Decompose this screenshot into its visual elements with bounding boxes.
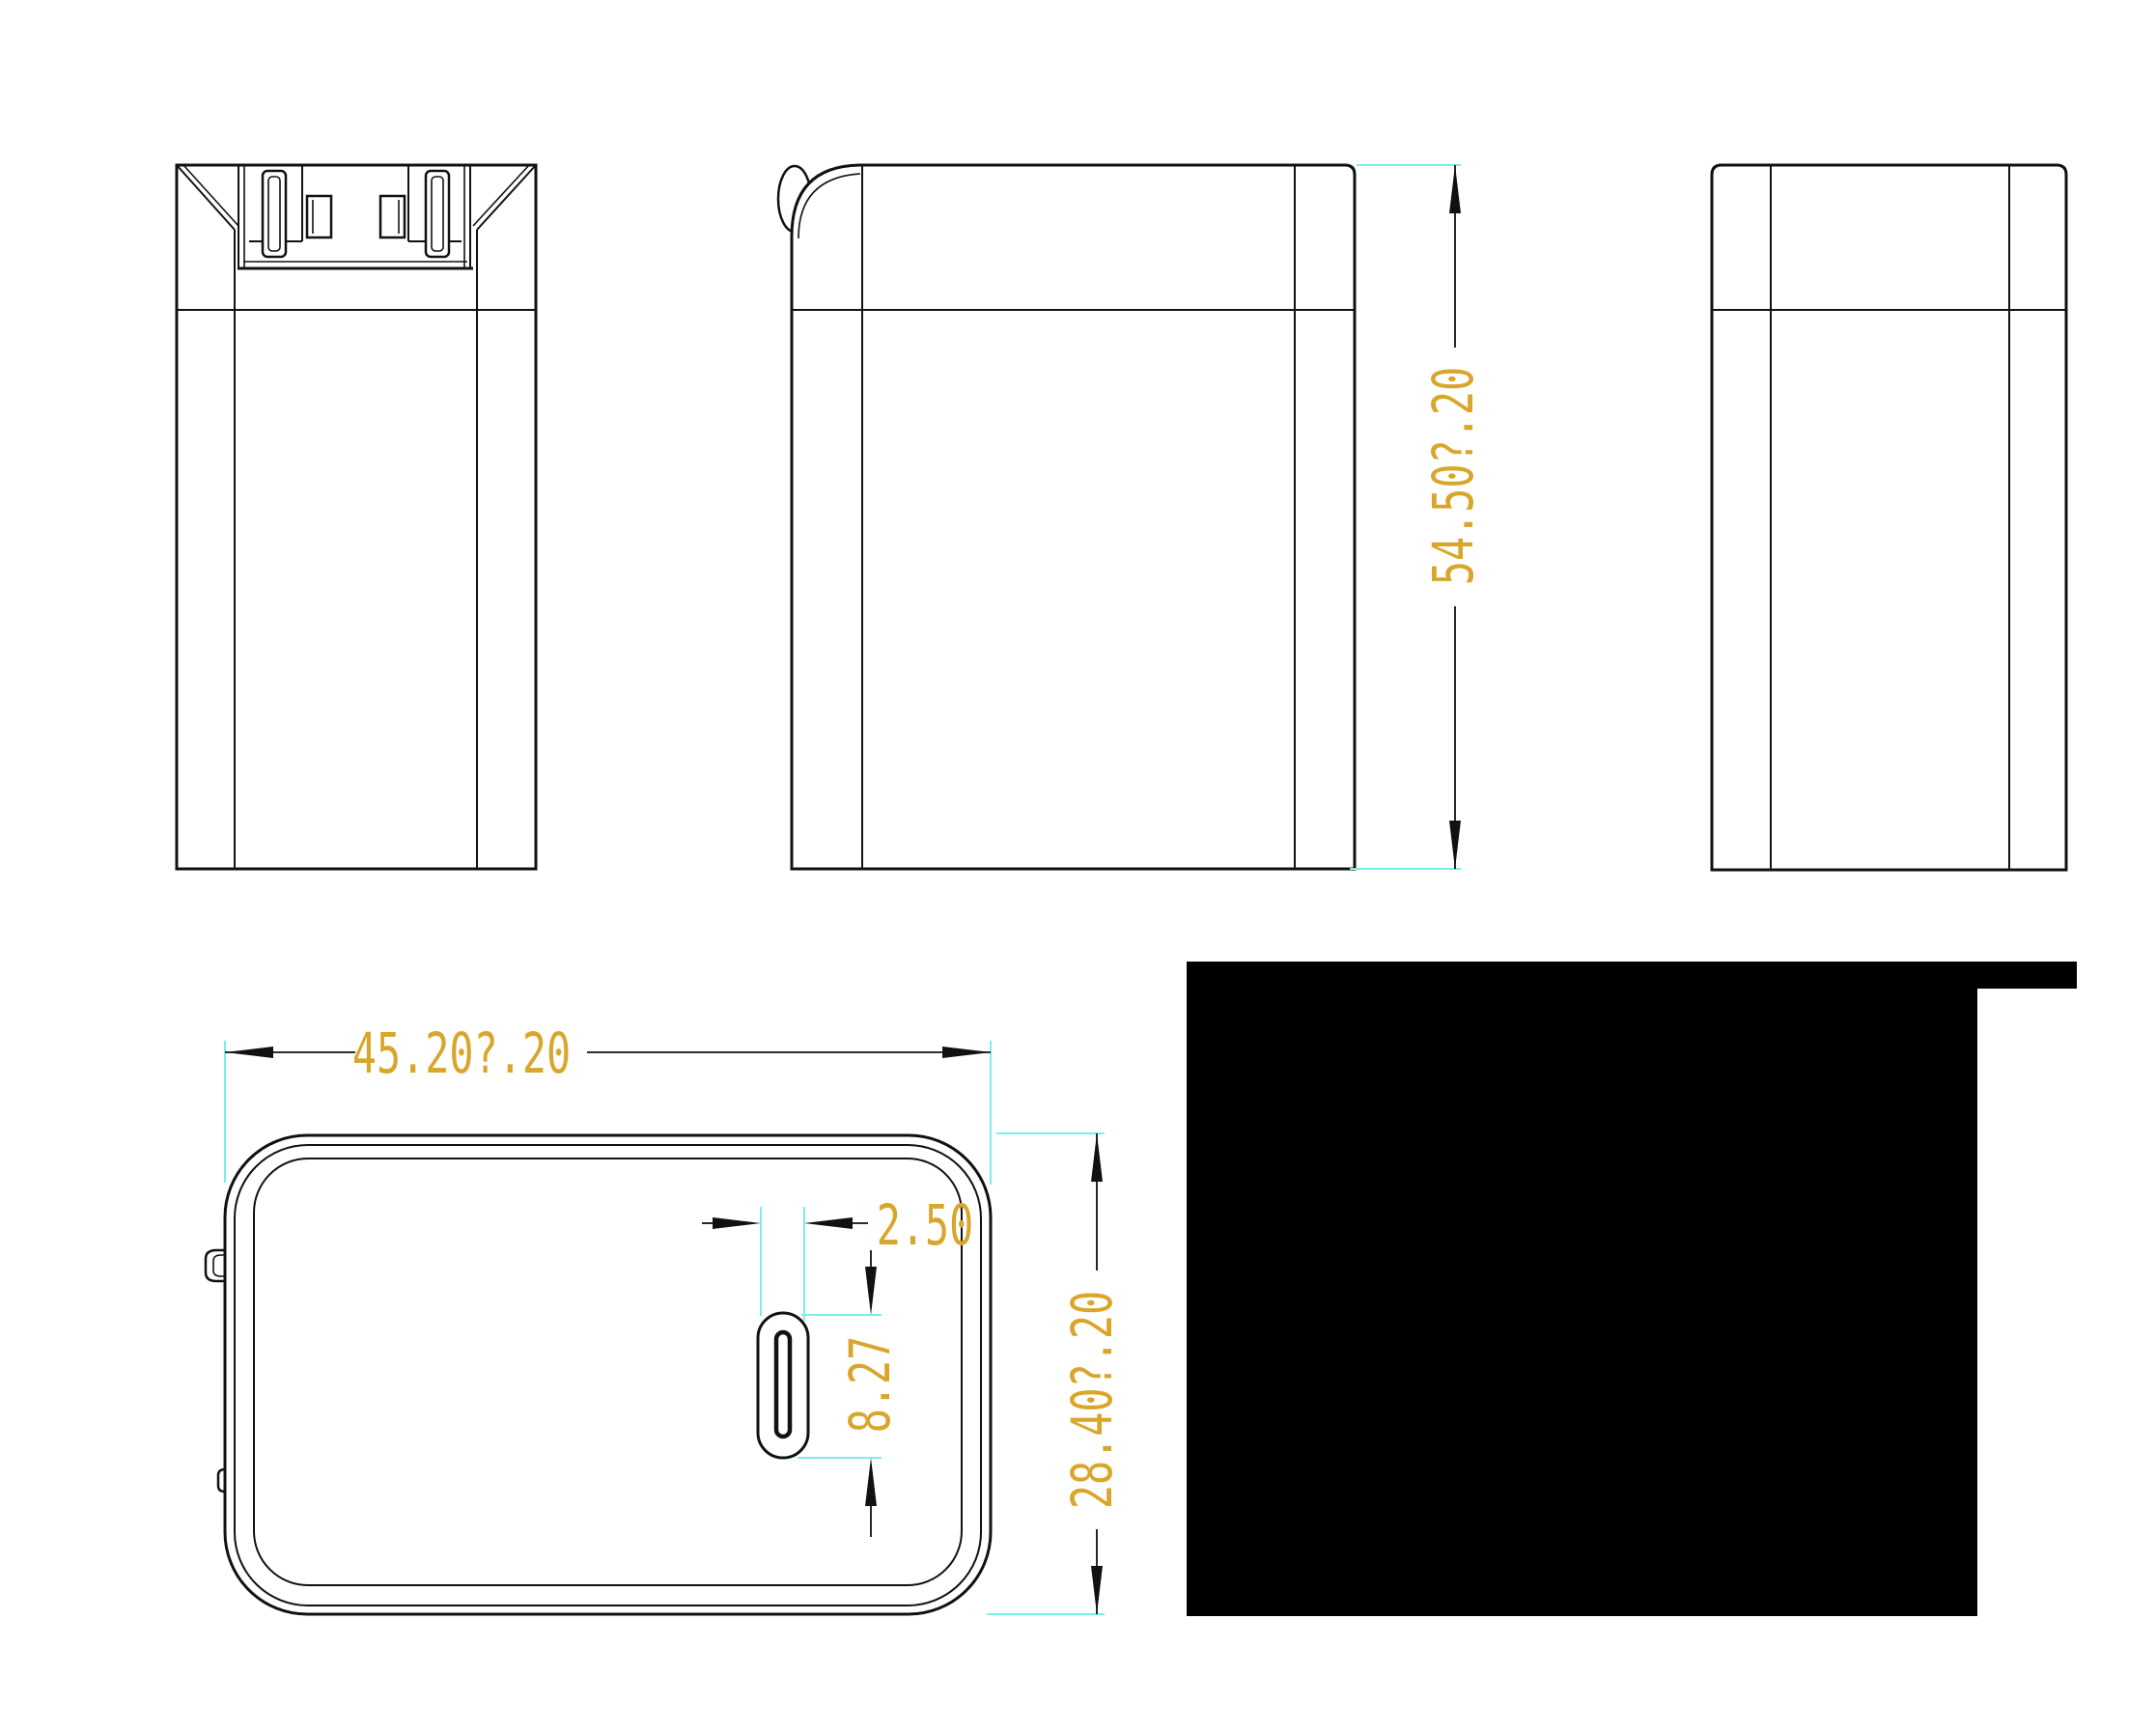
left-prong-tab <box>307 196 331 237</box>
right-prong-tab <box>380 196 405 237</box>
left-prong-blade <box>263 171 286 257</box>
side-right-outline <box>1712 165 2066 870</box>
side-view-right <box>1712 165 2066 870</box>
dim-overall-depth-label: 28.40?.20 <box>1064 1291 1120 1509</box>
side-view <box>778 165 1355 869</box>
front-view <box>177 165 536 869</box>
dim-port-slot-width-label: 2.50 <box>877 1197 974 1253</box>
technical-drawing-canvas: 45.20?.20 54.50?.20 28.40?.20 2.50 8.27 <box>0 0 2156 1731</box>
dim-overall-height-label: 54.50?.20 <box>1425 367 1481 585</box>
redaction-block <box>1187 962 2077 1616</box>
front-view-outline <box>177 165 536 869</box>
arrow-width-right <box>942 1047 991 1058</box>
arrow-width-left <box>225 1047 273 1058</box>
side-view-outline <box>792 165 1355 869</box>
dim-overall-width-label: 45.20?.20 <box>352 1025 571 1081</box>
arrow-depth-bottom <box>1091 1566 1103 1614</box>
arrow-depth-top <box>1091 1133 1103 1182</box>
right-prong-blade <box>426 171 449 257</box>
redacted-region <box>1187 962 2077 1616</box>
arrow-height-bottom <box>1449 821 1461 869</box>
dim-port-slot-height-label: 8.27 <box>842 1336 898 1434</box>
arrow-height-top <box>1449 165 1461 213</box>
